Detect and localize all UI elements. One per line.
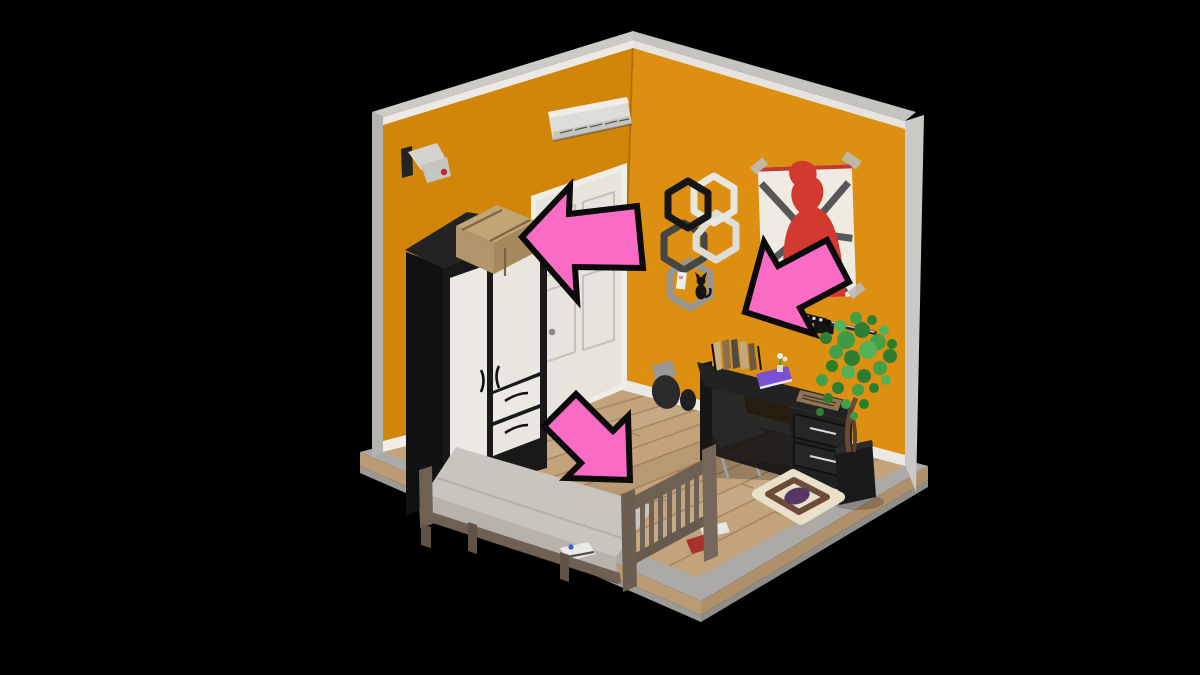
outer-edge-left bbox=[372, 112, 383, 458]
desk-book-organizer bbox=[712, 339, 761, 372]
game-screenshot bbox=[0, 0, 1200, 675]
door-knob[interactable] bbox=[549, 329, 556, 336]
room-scene bbox=[0, 0, 1200, 675]
camera-lens bbox=[441, 169, 447, 175]
